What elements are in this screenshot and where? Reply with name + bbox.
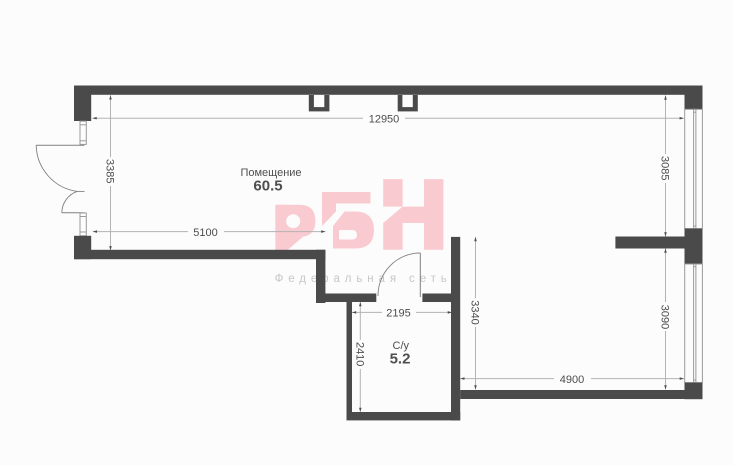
svg-text:3090: 3090 xyxy=(659,305,671,329)
svg-text:4900: 4900 xyxy=(560,374,584,386)
svg-text:60.5: 60.5 xyxy=(253,178,282,195)
svg-text:3085: 3085 xyxy=(659,156,671,180)
svg-text:12950: 12950 xyxy=(369,114,400,126)
svg-text:2195: 2195 xyxy=(386,308,410,320)
svg-text:3385: 3385 xyxy=(104,159,116,183)
svg-text:Федеральная сеть: Федеральная сеть xyxy=(275,273,452,285)
svg-text:5.2: 5.2 xyxy=(390,351,411,368)
svg-text:2410: 2410 xyxy=(354,342,366,366)
svg-text:5100: 5100 xyxy=(193,227,217,239)
svg-text:3340: 3340 xyxy=(469,300,481,324)
